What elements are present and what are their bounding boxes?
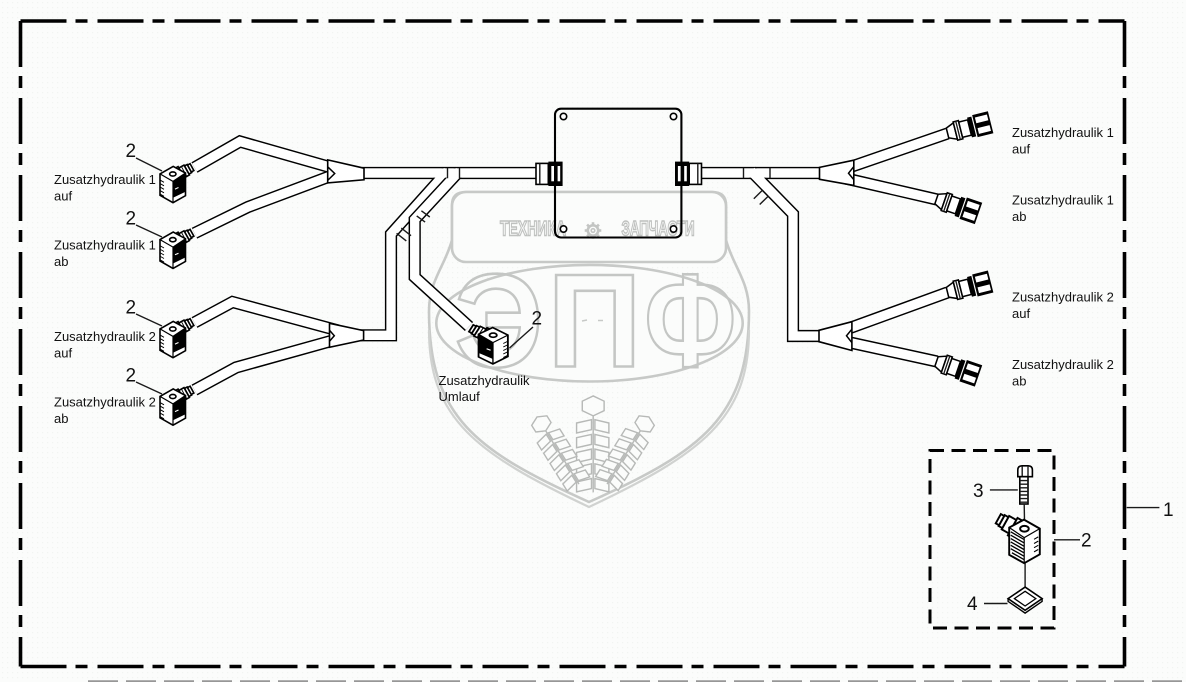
svg-text:Zusatzhydraulik 2: Zusatzhydraulik 2 xyxy=(54,395,156,410)
svg-text:Zusatzhydraulik 1: Zusatzhydraulik 1 xyxy=(1012,125,1114,140)
svg-text:Ф: Ф xyxy=(644,246,736,395)
svg-text:2: 2 xyxy=(1081,531,1092,552)
svg-text:2: 2 xyxy=(126,366,137,387)
svg-text:П: П xyxy=(547,247,641,396)
svg-text:4: 4 xyxy=(967,594,978,615)
svg-text:Zusatzhydraulik 2: Zusatzhydraulik 2 xyxy=(1012,357,1114,372)
svg-text:Umlauf: Umlauf xyxy=(439,389,481,404)
svg-text:ab: ab xyxy=(1012,209,1026,224)
svg-text:Zusatzhydraulik 1: Zusatzhydraulik 1 xyxy=(54,238,156,253)
svg-text:auf: auf xyxy=(1012,141,1030,156)
svg-text:auf: auf xyxy=(54,345,72,360)
svg-text:Zusatzhydraulik 1: Zusatzhydraulik 1 xyxy=(54,172,156,187)
svg-text:2: 2 xyxy=(126,209,137,230)
svg-text:auf: auf xyxy=(54,188,72,203)
svg-text:Zusatzhydraulik 2: Zusatzhydraulik 2 xyxy=(1012,290,1114,305)
svg-text:2: 2 xyxy=(126,298,137,319)
svg-text:Zusatzhydraulik 1: Zusatzhydraulik 1 xyxy=(1012,193,1114,208)
svg-text:2: 2 xyxy=(126,141,137,162)
svg-text:Zusatzhydraulik 2: Zusatzhydraulik 2 xyxy=(54,329,156,344)
svg-text:auf: auf xyxy=(1012,306,1030,321)
svg-text:2: 2 xyxy=(532,309,543,330)
svg-text:ТЕХНИКА: ТЕХНИКА xyxy=(500,217,566,241)
svg-text:ab: ab xyxy=(54,254,68,269)
svg-text:3: 3 xyxy=(973,481,984,502)
svg-text:ab: ab xyxy=(1012,373,1026,388)
svg-text:1: 1 xyxy=(1163,500,1174,521)
svg-text:Zusatzhydraulik: Zusatzhydraulik xyxy=(439,373,531,388)
svg-text:ab: ab xyxy=(54,411,68,426)
